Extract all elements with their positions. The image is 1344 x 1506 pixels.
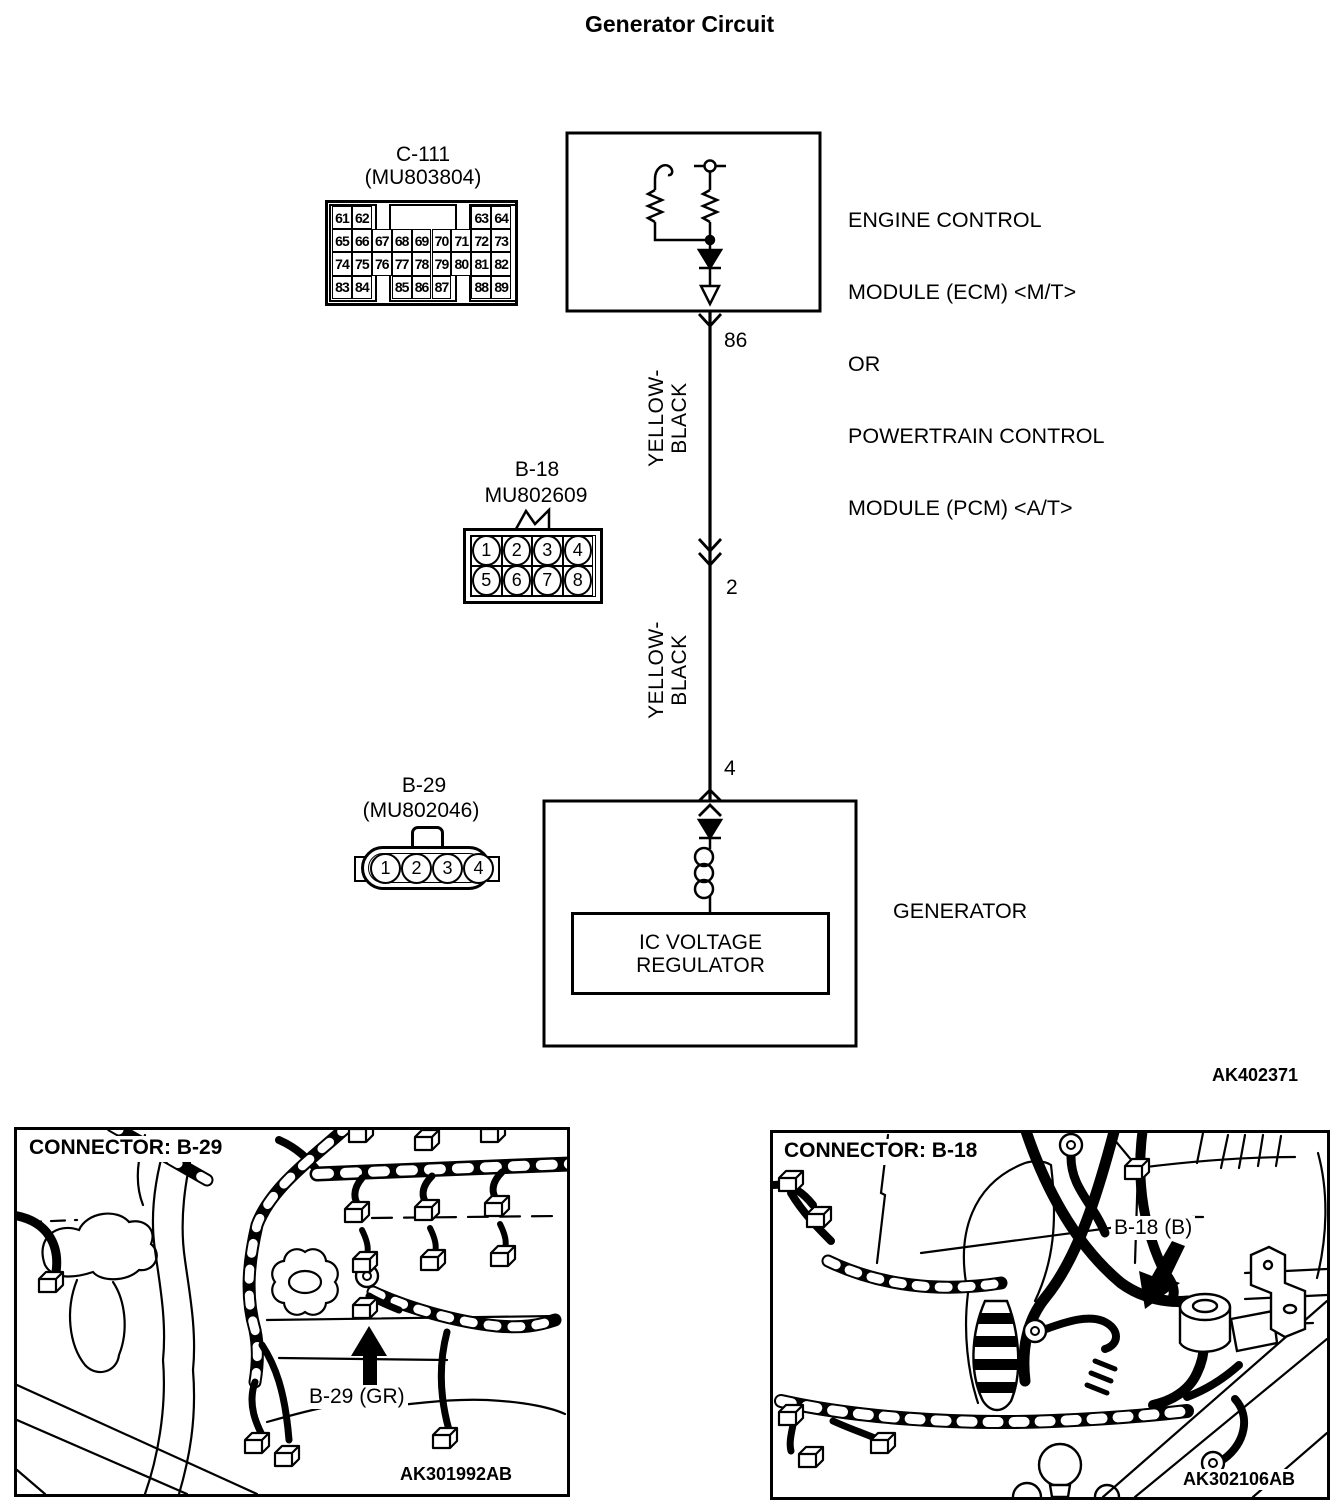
photo-panel-b18: CONNECTOR: B-18 B-18 (B) AK302106AB bbox=[770, 1130, 1330, 1500]
c111-pin-86: 86 bbox=[412, 276, 432, 299]
photo-b18-callout: B-18 (B) bbox=[1111, 1216, 1195, 1240]
b18-pin-grid: 12345678 bbox=[470, 535, 596, 597]
diagram-code: AK402371 bbox=[1212, 1066, 1298, 1086]
c111-pin-grid: 6162636465666768697071727374757677787980… bbox=[325, 200, 518, 306]
photo-b29-artwork bbox=[17, 1130, 567, 1494]
ic-voltage-regulator-box: IC VOLTAGE REGULATOR bbox=[571, 912, 830, 995]
pin-circle-1: 1 bbox=[472, 535, 501, 566]
page-title: Generator Circuit bbox=[585, 12, 774, 37]
c111-pin-68: 68 bbox=[392, 229, 412, 252]
terminal-circle bbox=[705, 161, 716, 172]
b29-name-label: B-29 bbox=[402, 774, 446, 797]
b29-target-connector bbox=[353, 1298, 377, 1318]
c111-pin-84: 84 bbox=[352, 276, 372, 299]
pin-cell-2: 2 bbox=[401, 853, 432, 884]
c111-name-label: C-111 bbox=[396, 143, 450, 166]
c111-pin-78: 78 bbox=[412, 252, 432, 275]
wire-color-line: BLACK bbox=[668, 369, 691, 467]
ecm-label-line: POWERTRAIN CONTROL bbox=[848, 424, 1104, 448]
photo-b18-header: CONNECTOR: B-18 bbox=[784, 1139, 985, 1165]
pin-cell-1: 1 bbox=[370, 853, 401, 884]
pin-cell-6: 6 bbox=[502, 566, 533, 596]
pin-cell-3: 3 bbox=[432, 853, 463, 884]
page: { "title": "Generator Circuit", "diagram… bbox=[0, 0, 1344, 1506]
pin-cell-4: 4 bbox=[563, 536, 594, 566]
wire-color-line: YELLOW- bbox=[645, 369, 668, 467]
c111-pin-87: 87 bbox=[432, 276, 452, 299]
c111-pin-79: 79 bbox=[432, 252, 452, 275]
c111-pin-72: 72 bbox=[471, 229, 491, 252]
c111-pin-73: 73 bbox=[491, 229, 511, 252]
c111-pin-66: 66 bbox=[352, 229, 372, 252]
pin-cell-8: 8 bbox=[563, 566, 594, 596]
c111-pin-61: 61 bbox=[332, 206, 352, 229]
photo-b18-code: AK302106AB bbox=[1181, 1469, 1297, 1490]
c111-pin-76: 76 bbox=[372, 252, 392, 275]
c111-pin-63: 63 bbox=[471, 206, 491, 229]
c111-pin-70: 70 bbox=[432, 229, 452, 252]
pin-cell-1: 1 bbox=[471, 536, 502, 566]
pin-circle-3: 3 bbox=[432, 853, 463, 884]
wire-color-line: YELLOW- bbox=[645, 621, 668, 719]
pin-cell-3: 3 bbox=[532, 536, 563, 566]
ecm-label-line: MODULE (ECM) <M/T> bbox=[848, 280, 1104, 304]
c111-pin-74: 74 bbox=[332, 252, 352, 275]
ecm-box bbox=[567, 133, 820, 311]
c111-pin-82: 82 bbox=[491, 252, 511, 275]
photo-b18-artwork bbox=[773, 1133, 1327, 1497]
photo-b29-callout: B-29 (GR) bbox=[306, 1385, 408, 1409]
ecm-label-line: MODULE (PCM) <A/T> bbox=[848, 496, 1104, 520]
c111-pin-80: 80 bbox=[451, 252, 471, 275]
pin-circle-8: 8 bbox=[564, 565, 593, 596]
pin-cell-2: 2 bbox=[502, 536, 533, 566]
photo-b29-code: AK301992AB bbox=[398, 1464, 514, 1485]
pin-circle-2: 2 bbox=[401, 853, 432, 884]
ecm-label-line: OR bbox=[848, 352, 1104, 376]
generator-label: GENERATOR bbox=[893, 900, 1027, 924]
ecm-label: ENGINE CONTROL MODULE (ECM) <M/T> OR POW… bbox=[848, 160, 1104, 544]
c111-pin-81: 81 bbox=[471, 252, 491, 275]
c111-pin-65: 65 bbox=[332, 229, 352, 252]
b29-pin-row: 1234 bbox=[368, 853, 484, 883]
c111-pin-77: 77 bbox=[392, 252, 412, 275]
pin-cell-5: 5 bbox=[471, 566, 502, 596]
regulator-label-line: REGULATOR bbox=[636, 954, 765, 977]
c111-pin-75: 75 bbox=[352, 252, 372, 275]
c111-pin-88: 88 bbox=[471, 276, 491, 299]
b18-target-connector bbox=[1180, 1294, 1277, 1352]
pin-circle-7: 7 bbox=[533, 565, 562, 596]
c111-pin-62: 62 bbox=[352, 206, 372, 229]
pin-circle-4: 4 bbox=[564, 535, 593, 566]
b29-part-label: (MU802046) bbox=[363, 799, 480, 822]
c111-pin-64: 64 bbox=[491, 206, 511, 229]
wire-color-label-bottom: YELLOW- BLACK bbox=[645, 621, 691, 719]
b18-part-label: MU802609 bbox=[485, 484, 588, 507]
photo-panel-b29: CONNECTOR: B-29 B-29 (GR) AK301992AB bbox=[14, 1127, 570, 1497]
c111-pin-67: 67 bbox=[372, 229, 392, 252]
pin-circle-6: 6 bbox=[503, 565, 532, 596]
pin-cell-7: 7 bbox=[532, 566, 563, 596]
pin-circle-1: 1 bbox=[370, 853, 401, 884]
b18-connector: 12345678 bbox=[463, 528, 603, 604]
wire-color-label-top: YELLOW- BLACK bbox=[645, 369, 691, 467]
c111-pin-85: 85 bbox=[392, 276, 412, 299]
b18-name-label: B-18 bbox=[515, 458, 559, 481]
pin-circle-2: 2 bbox=[503, 535, 532, 566]
regulator-label-line: IC VOLTAGE bbox=[639, 931, 762, 954]
cap-shape bbox=[1013, 1444, 1119, 1497]
pin-cell-4: 4 bbox=[463, 853, 494, 884]
junction-dot bbox=[706, 236, 714, 244]
photo-b29-header: CONNECTOR: B-29 bbox=[29, 1136, 230, 1162]
c111-pin-83: 83 bbox=[332, 276, 352, 299]
b18-latch-notch bbox=[516, 510, 549, 529]
c111-part-label: (MU803804) bbox=[365, 166, 482, 189]
pin-circle-4: 4 bbox=[463, 853, 494, 884]
c111-pin-89: 89 bbox=[491, 276, 511, 299]
pin-circle-5: 5 bbox=[472, 565, 501, 596]
pin-4-label: 4 bbox=[724, 757, 736, 780]
pin-circle-3: 3 bbox=[533, 535, 562, 566]
pin-86-label: 86 bbox=[724, 329, 747, 352]
c111-pin-69: 69 bbox=[412, 229, 432, 252]
ecm-label-line: ENGINE CONTROL bbox=[848, 208, 1104, 232]
oil-cap-shape bbox=[272, 1249, 338, 1315]
b29-connector: 1234 bbox=[361, 846, 491, 890]
c111-pin-71: 71 bbox=[451, 229, 471, 252]
wire-color-line: BLACK bbox=[668, 621, 691, 719]
pin-2-label: 2 bbox=[726, 576, 738, 599]
